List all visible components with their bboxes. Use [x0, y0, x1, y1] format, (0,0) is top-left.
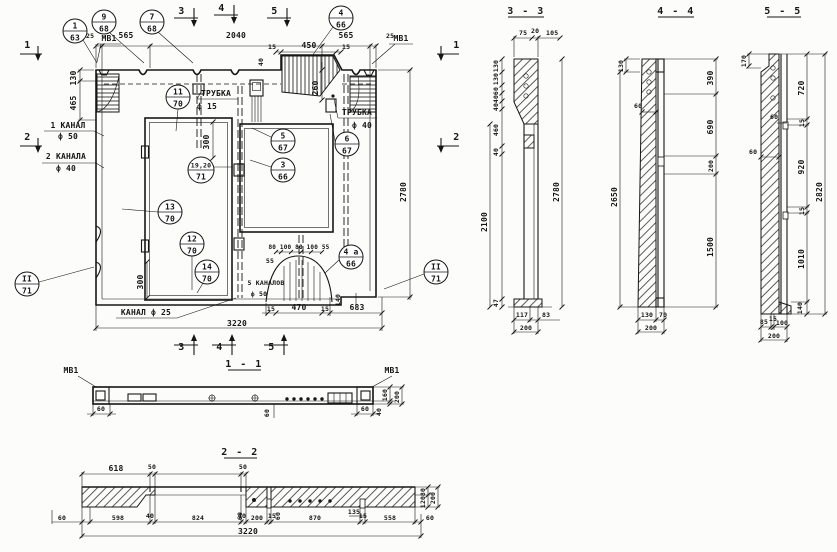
section-5-5-view: 5 - 5 170 60 60 720 15 920 15 1010 140 2… [733, 2, 837, 352]
dim-470: 470 [291, 303, 306, 312]
svg-text:200: 200 [429, 492, 437, 504]
svg-text:4: 4 [218, 3, 226, 14]
callout-14-70: 1470 [195, 260, 219, 284]
svg-text:50: 50 [148, 463, 156, 471]
section-1-1-annotations: МВ1 МВ1 60 60 60 160 40 200 [63, 366, 404, 418]
section-mark-1-right: 1 [437, 40, 461, 61]
panel-outline [96, 55, 376, 305]
svg-text:170: 170 [740, 55, 748, 67]
svg-text:71: 71 [22, 287, 32, 296]
section-1-1-body [93, 387, 373, 404]
svg-text:824: 824 [192, 514, 204, 522]
dim-3220: 3220 [227, 319, 247, 328]
svg-text:12: 12 [187, 235, 197, 244]
svg-text:14: 14 [202, 263, 212, 272]
svg-text:160: 160 [381, 389, 389, 401]
kanal25-label: КАНАЛ ф 25 [121, 308, 171, 317]
svg-text:19,20: 19,20 [191, 162, 212, 170]
svg-text:1010: 1010 [797, 249, 806, 269]
svg-text:11: 11 [173, 88, 183, 97]
svg-text:40: 40 [146, 512, 154, 520]
svg-text:4 a: 4 a [343, 248, 358, 257]
dim-2040: 2040 [226, 31, 246, 40]
svg-text:2100: 2100 [480, 212, 489, 232]
dim-40-v: 40 [257, 58, 265, 66]
callout-6-67: 667 [335, 132, 359, 156]
callout-5-67: 567 [271, 129, 295, 153]
svg-text:7: 7 [149, 13, 154, 22]
section-1-1-title: 1 - 1 [225, 359, 263, 370]
callout-3-66: 366 [271, 158, 295, 182]
svg-text:70: 70 [202, 275, 212, 284]
svg-text:105: 105 [546, 29, 558, 37]
section-mark-4-bottom: 4 [212, 334, 236, 355]
main-elevation-view: 25 565 2040 565 25 15 450 15 40 130 465 … [0, 0, 470, 356]
svg-text:60: 60 [274, 512, 282, 520]
section-2-2-title: 2 - 2 [221, 447, 259, 458]
section-mark-3-top: 3 [174, 6, 198, 27]
svg-text:558: 558 [384, 514, 396, 522]
callout-4-66: 466 [329, 6, 353, 30]
section-3-3-body [508, 59, 552, 307]
svg-text:80: 80 [419, 488, 427, 496]
dim-683: 683 [349, 303, 364, 312]
svg-text:47: 47 [492, 299, 500, 307]
svg-text:4: 4 [338, 9, 343, 18]
svg-text:II: II [431, 263, 441, 272]
dim-260: 260 [311, 80, 320, 95]
svg-text:1: 1 [72, 22, 77, 31]
trubka15-dia: ф 15 [197, 102, 217, 111]
callout-II-71-right: II71 [424, 260, 448, 284]
section-2-2-view: 2 - 2 618 50 50 60 598 40 824 40 200 15 … [38, 444, 448, 552]
svg-text:70: 70 [173, 100, 183, 109]
dim-130: 130 [69, 70, 78, 85]
callout-9-68: 968 [92, 10, 116, 34]
svg-text:200: 200 [645, 324, 657, 332]
svg-text:200: 200 [707, 160, 715, 172]
mv1-left-label: МВ1 [101, 34, 116, 43]
svg-text:2 - 2: 2 - 2 [221, 447, 259, 458]
svg-text:5: 5 [268, 342, 276, 353]
svg-text:71: 71 [196, 173, 206, 182]
section-3-3-view: 3 - 3 75 20 105 130 130 60 40 40 460 40 … [468, 2, 620, 350]
callout-13-70: 1370 [158, 200, 182, 224]
callout-1-63: 163 [63, 19, 87, 43]
svg-text:4: 4 [216, 342, 224, 353]
five-channels-dia: ф 50 [251, 290, 267, 298]
svg-text:4 - 4: 4 - 4 [657, 6, 695, 17]
drawing-sheet: 25 565 2040 565 25 15 450 15 40 130 465 … [0, 0, 837, 552]
dim-channel-row: 80 100 80 100 55 [269, 244, 330, 251]
svg-text:40: 40 [375, 408, 383, 416]
kanal2-dia: ф 40 [56, 164, 76, 173]
svg-text:2780: 2780 [552, 182, 561, 202]
kanal1-dia: ф 50 [58, 132, 78, 141]
svg-text:20: 20 [531, 27, 539, 35]
dim-55: 55 [266, 257, 274, 265]
svg-text:1 - 1: 1 - 1 [225, 359, 263, 370]
svg-text:60: 60 [749, 148, 757, 156]
section-3-3-title: 3 - 3 [507, 6, 545, 17]
svg-text:920: 920 [797, 159, 806, 174]
section-5-5-title: 5 - 5 [764, 6, 802, 17]
svg-text:720: 720 [797, 80, 806, 95]
svg-text:135: 135 [348, 508, 360, 516]
svg-text:60: 60 [492, 87, 500, 95]
svg-text:67: 67 [278, 144, 288, 153]
svg-text:70: 70 [165, 215, 175, 224]
svg-text:3 - 3: 3 - 3 [507, 6, 545, 17]
svg-text:690: 690 [706, 119, 715, 134]
dim-465: 465 [69, 95, 78, 110]
svg-text:15: 15 [798, 119, 806, 127]
svg-text:200: 200 [251, 514, 263, 522]
mv1-right-label: МВ1 [393, 34, 408, 43]
svg-text:2: 2 [24, 132, 32, 143]
dim-565-left: 565 [118, 31, 133, 40]
svg-text:200: 200 [520, 324, 532, 332]
svg-text:II: II [22, 275, 32, 284]
svg-text:66: 66 [336, 21, 346, 30]
svg-text:140: 140 [796, 302, 804, 314]
svg-text:2820: 2820 [815, 182, 824, 202]
svg-text:85: 85 [760, 318, 768, 326]
svg-text:5: 5 [280, 132, 285, 141]
svg-text:60: 60 [634, 102, 642, 110]
svg-text:130: 130 [641, 311, 653, 319]
svg-text:60: 60 [361, 405, 369, 413]
svg-text:13: 13 [165, 203, 175, 212]
svg-text:71: 71 [431, 275, 441, 284]
svg-text:1: 1 [453, 40, 461, 51]
section-mark-1-left: 1 [20, 40, 42, 61]
svg-text:1: 1 [24, 40, 32, 51]
svg-text:60: 60 [97, 405, 105, 413]
dim-140: 140 [334, 294, 342, 306]
svg-text:68: 68 [147, 25, 157, 34]
svg-text:200: 200 [393, 391, 401, 403]
dim-15-c: 15 [267, 305, 275, 313]
svg-text:618: 618 [108, 464, 123, 473]
svg-text:100: 100 [776, 319, 788, 327]
section-mark-2-right: 2 [437, 132, 461, 153]
svg-text:3: 3 [178, 6, 186, 17]
section-4-4-view: 4 - 4 130 2650 60 390 690 200 1500 130 7… [612, 2, 740, 350]
trubka40-label: ТРУБКА [342, 108, 372, 117]
section-mark-4-top: 4 [214, 3, 238, 24]
svg-text:3: 3 [178, 342, 186, 353]
callout-12-70: 1270 [180, 232, 204, 256]
svg-text:3: 3 [280, 161, 285, 170]
svg-text:70: 70 [187, 247, 197, 256]
svg-text:460: 460 [492, 124, 500, 136]
svg-text:75: 75 [519, 29, 527, 37]
section-mark-5-bottom: 5 [264, 334, 288, 355]
svg-text:130: 130 [492, 73, 500, 85]
svg-text:130: 130 [617, 60, 625, 72]
svg-text:83: 83 [542, 311, 550, 319]
callout-II-71-left: II71 [15, 272, 39, 296]
callout-11-70: 1170 [166, 85, 190, 109]
svg-text:598: 598 [112, 514, 124, 522]
svg-text:68: 68 [99, 25, 109, 34]
svg-text:40: 40 [492, 148, 500, 156]
svg-text:3220: 3220 [238, 527, 258, 536]
svg-text:60: 60 [426, 514, 434, 522]
svg-text:67: 67 [342, 147, 352, 156]
svg-text:2: 2 [453, 132, 461, 143]
svg-text:40: 40 [492, 95, 500, 103]
svg-text:120: 120 [419, 496, 427, 508]
section-5-5-dims: 170 60 60 720 15 920 15 1010 140 2820 85… [740, 52, 828, 343]
dim-15-a: 15 [268, 43, 276, 51]
kanal1-label: 1 КАНАЛ [50, 121, 85, 130]
section-4-4-body [638, 59, 664, 307]
mv1-s11-right: МВ1 [384, 366, 399, 375]
five-channels-label: 5 КАНАЛОВ [247, 279, 284, 287]
svg-text:15: 15 [798, 207, 806, 215]
kanal2-label: 2 КАНАЛА [46, 152, 86, 161]
dim-15-d: 15 [321, 305, 329, 313]
svg-text:200: 200 [768, 332, 780, 340]
svg-text:40: 40 [492, 103, 500, 111]
section-4-4-title: 4 - 4 [657, 6, 695, 17]
svg-text:870: 870 [309, 514, 321, 522]
section-mark-3-bottom: 3 [174, 334, 198, 355]
section-mark-2-left: 2 [20, 132, 42, 153]
callout-4a-66: 4 a66 [339, 245, 363, 269]
svg-text:60: 60 [58, 514, 66, 522]
svg-text:6: 6 [344, 135, 349, 144]
dim-450: 450 [301, 41, 316, 50]
callout-7-68: 768 [140, 10, 164, 34]
svg-text:66: 66 [346, 260, 356, 269]
svg-text:130: 130 [492, 60, 500, 72]
section-2-2-body [82, 487, 415, 508]
dim-565-right: 565 [338, 31, 353, 40]
svg-text:60: 60 [263, 409, 271, 417]
svg-text:70: 70 [659, 311, 667, 319]
svg-text:117: 117 [516, 311, 528, 319]
dim-2780: 2780 [399, 182, 408, 202]
svg-text:5: 5 [271, 6, 279, 17]
svg-text:1500: 1500 [706, 237, 715, 257]
svg-text:63: 63 [70, 34, 80, 43]
dim-300-b: 300 [136, 274, 145, 289]
mv1-s11-left: МВ1 [63, 366, 78, 375]
svg-text:390: 390 [706, 70, 715, 85]
dim-15-b: 15 [342, 43, 350, 51]
svg-text:60: 60 [236, 512, 244, 520]
trubka40-dia: ф 40 [352, 121, 372, 130]
svg-text:9: 9 [101, 13, 106, 22]
section-mark-5-top: 5 [267, 6, 291, 27]
svg-text:66: 66 [278, 173, 288, 182]
svg-text:5 - 5: 5 - 5 [764, 6, 802, 17]
callout-19-20-71: 19,2071 [188, 157, 214, 183]
section-1-1-view: 1 - 1 МВ1 МВ1 60 60 60 160 40 200 [40, 356, 436, 452]
trubka15-label: ТРУБКА [201, 89, 231, 98]
svg-text:2650: 2650 [610, 187, 619, 207]
svg-text:50: 50 [239, 463, 247, 471]
section-5-5-body [761, 54, 791, 314]
svg-text:60: 60 [770, 113, 778, 121]
dim-300-a: 300 [202, 134, 211, 149]
